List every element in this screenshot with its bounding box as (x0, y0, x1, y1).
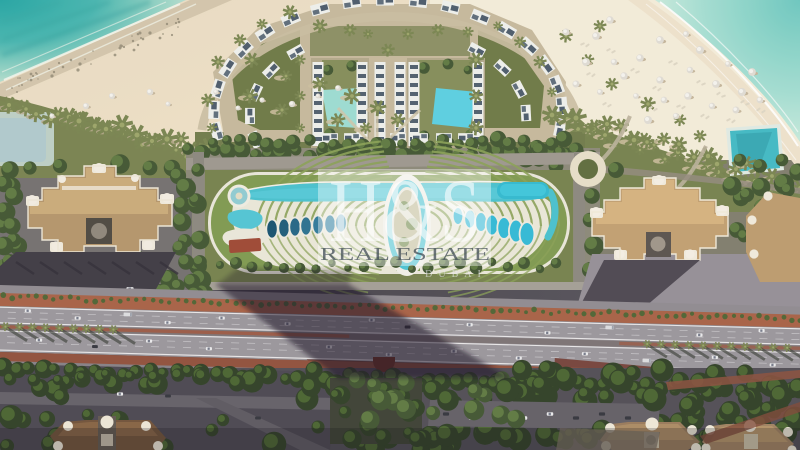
svg-text:REAL ESTATE: REAL ESTATE (320, 244, 490, 264)
svg-text:DUBAI: DUBAI (425, 269, 487, 280)
